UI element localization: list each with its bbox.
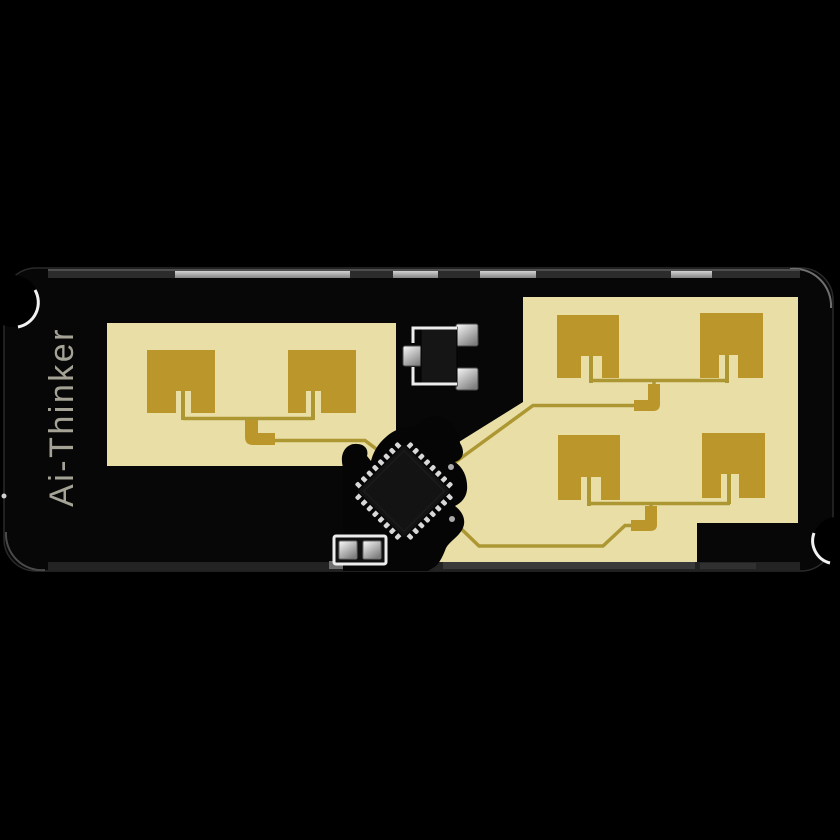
castellation-pad bbox=[175, 271, 350, 278]
patch bbox=[288, 350, 356, 413]
solder-pad bbox=[456, 368, 478, 390]
castellation-pad bbox=[393, 271, 438, 278]
castellation-pad bbox=[480, 271, 536, 278]
trace-pad bbox=[448, 464, 454, 470]
solder-pad bbox=[363, 541, 381, 559]
trace-pad bbox=[449, 516, 455, 522]
radar-module-board bbox=[0, 0, 840, 840]
castellation-pad bbox=[443, 562, 695, 569]
solder-pad bbox=[339, 541, 357, 559]
feed-line bbox=[311, 391, 315, 420]
component-body bbox=[421, 327, 457, 386]
patch-antenna-right-bottom-1 bbox=[558, 435, 620, 506]
patch-antenna-left-1 bbox=[147, 350, 215, 420]
top-edge-highlight bbox=[48, 269, 800, 271]
castellation-pad bbox=[700, 563, 756, 569]
solder-pad bbox=[456, 324, 478, 346]
patch-antenna-right-bottom-2 bbox=[702, 433, 765, 504]
feed-line bbox=[587, 477, 591, 506]
feed-line bbox=[181, 391, 185, 420]
patch-antenna-right-top-1 bbox=[557, 315, 619, 383]
passive-component bbox=[334, 536, 386, 564]
top-edge-castellations bbox=[48, 269, 800, 278]
feed-line bbox=[727, 474, 731, 504]
patch-antenna-left-2 bbox=[288, 350, 356, 420]
pcb-photo: Ai-Thinker bbox=[0, 0, 840, 840]
edge-nick bbox=[2, 494, 7, 499]
brand-label: Ai-Thinker bbox=[42, 322, 82, 512]
castellation-pad bbox=[671, 271, 712, 278]
patch-antenna-right-top-2 bbox=[700, 313, 763, 383]
